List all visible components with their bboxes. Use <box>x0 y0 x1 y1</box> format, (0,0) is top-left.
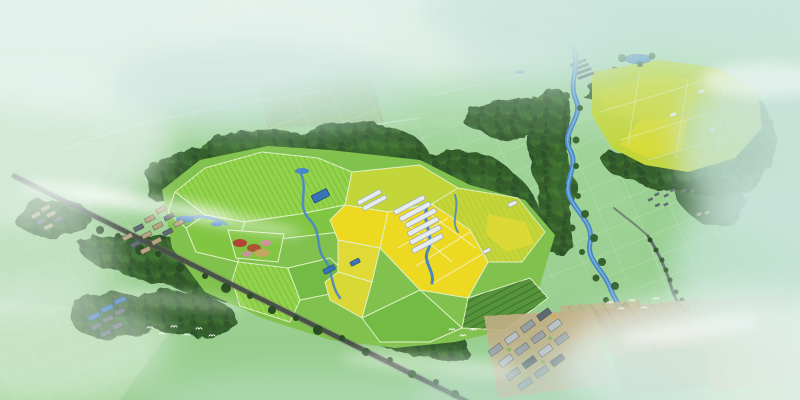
landscape-scene <box>0 0 800 400</box>
aerial-rendering <box>0 0 800 400</box>
mist-clouds <box>0 0 800 400</box>
